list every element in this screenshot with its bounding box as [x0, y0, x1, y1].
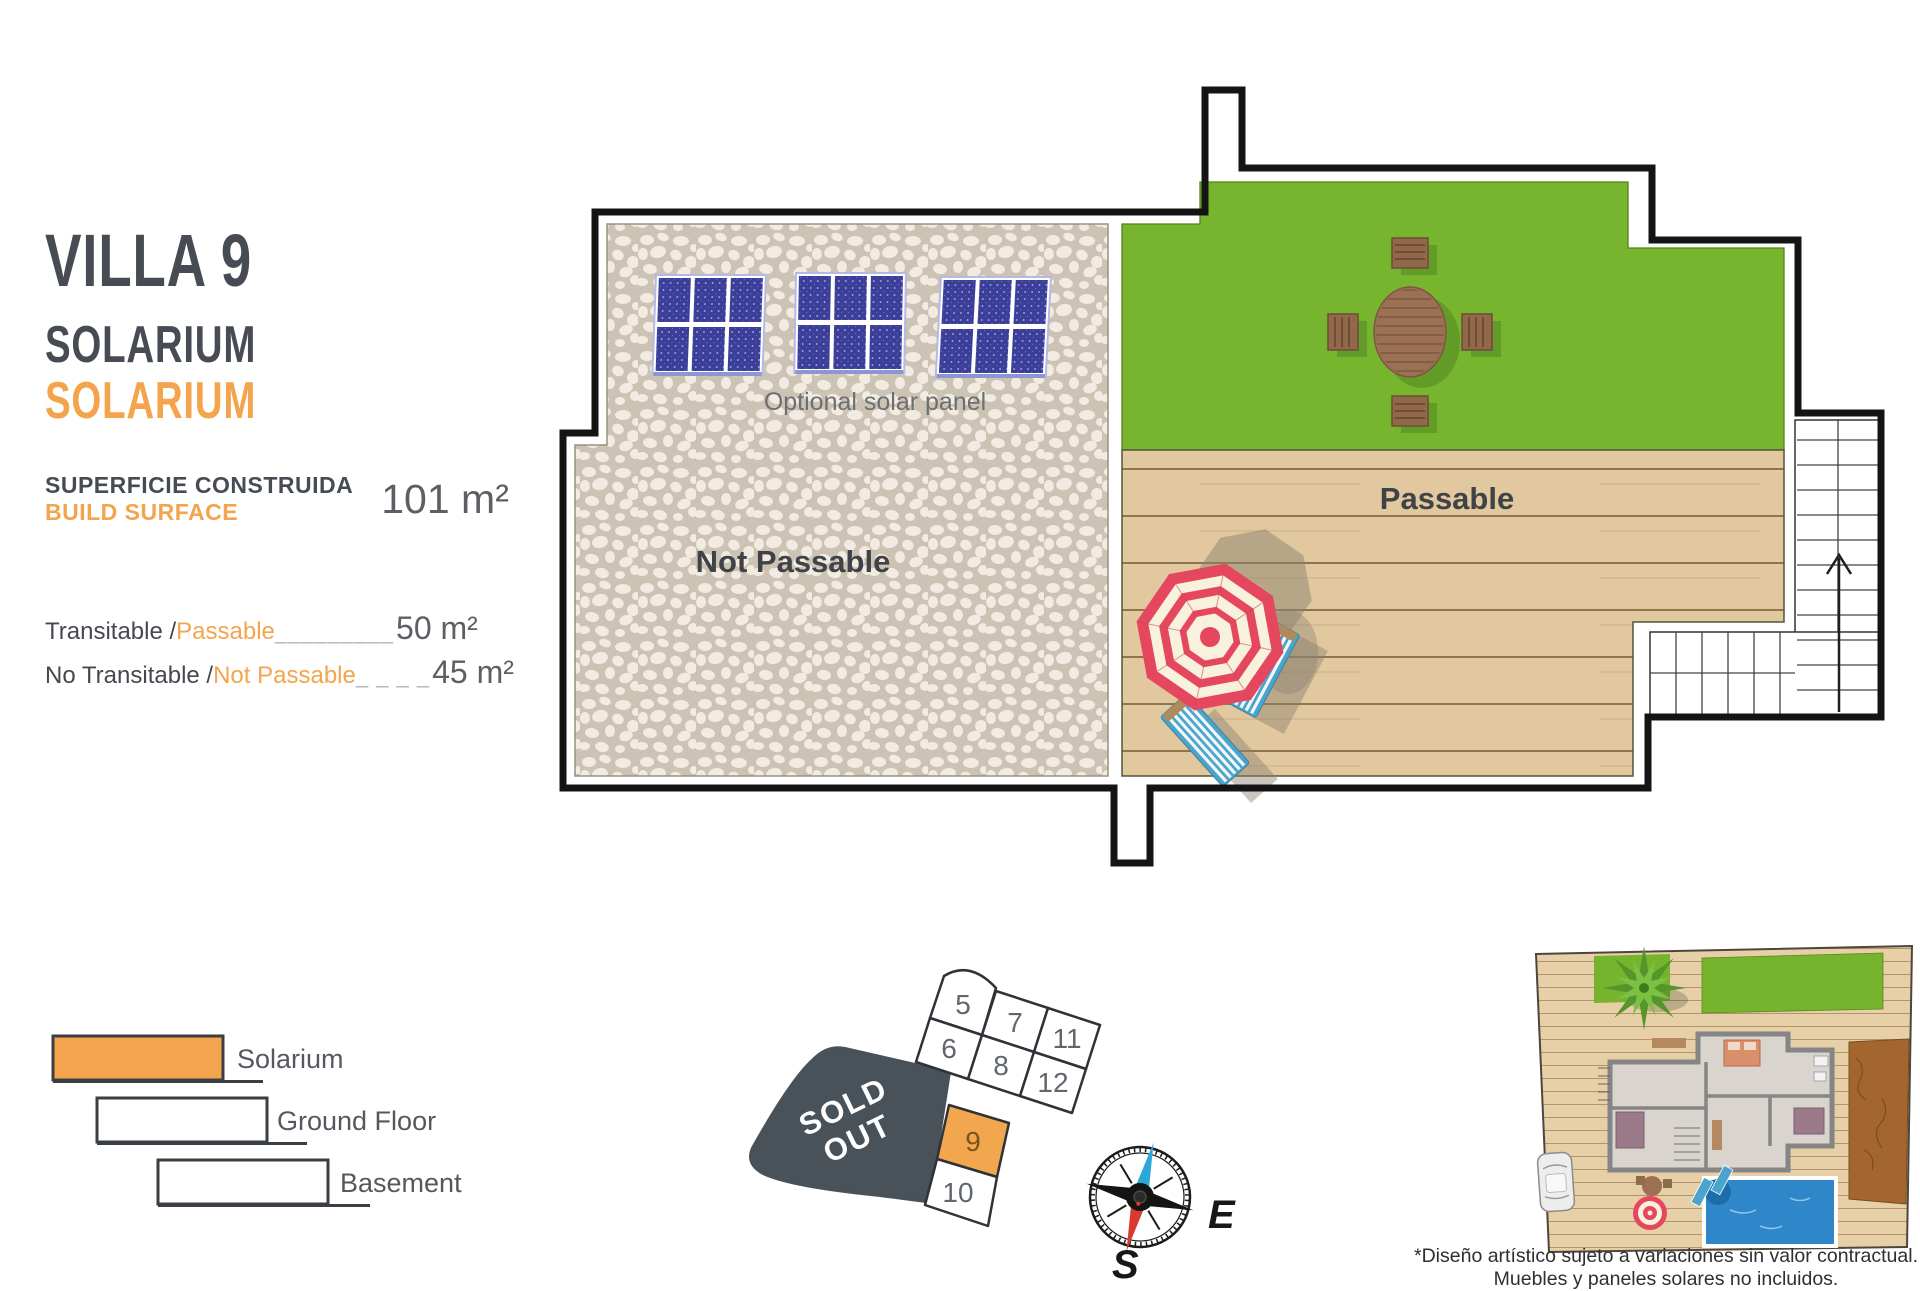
solarium-floorplan: Optional solar panel Not Passable Passab…: [563, 90, 1881, 863]
not-passable-label: Not Passable: [696, 544, 891, 579]
swimming-pool: [1704, 1178, 1836, 1246]
plot-locator-map: 5 7 11 6 8 12 9 10 SOLD OUT: [750, 970, 1100, 1226]
floor-legend: Solarium Ground Floor Basement: [53, 1036, 462, 1206]
car: [1537, 1152, 1575, 1212]
site-lawn: [1702, 953, 1883, 1013]
solar-panel: [651, 274, 767, 376]
plan-canvas: Optional solar panel Not Passable Passab…: [0, 0, 1920, 1280]
plot-number: 7: [1007, 1007, 1023, 1038]
legend-item-solarium: Solarium: [53, 1036, 344, 1082]
site-dirt-garden: [1849, 1039, 1909, 1204]
compass-east-label: E: [1208, 1193, 1236, 1237]
plot-number: 6: [941, 1033, 957, 1064]
passable-label: Passable: [1380, 481, 1514, 516]
solar-panels: [651, 272, 1052, 378]
legend-label: Basement: [340, 1168, 462, 1198]
plot-number: 5: [955, 989, 971, 1020]
legend-label: Ground Floor: [277, 1106, 436, 1136]
plot-number: 8: [993, 1050, 1009, 1081]
legend-label: Solarium: [237, 1044, 344, 1074]
legend-item-ground-floor: Ground Floor: [97, 1098, 436, 1144]
solar-panel: [793, 272, 907, 374]
solar-panel: [935, 276, 1052, 378]
legend-item-basement: Basement: [158, 1160, 462, 1206]
disclaimer: *Diseño artístico sujeto a variaciones s…: [1408, 1245, 1920, 1291]
site-plan-thumbnail: [1536, 946, 1912, 1252]
compass-south-label: S: [1112, 1243, 1139, 1280]
page: VILLA 9 SOLARIUM SOLARIUM SUPERFICIE CON…: [0, 0, 1920, 1280]
compass-rose: E S: [1073, 1129, 1236, 1280]
plot-number: 9: [965, 1126, 981, 1157]
round-table: [1374, 287, 1446, 377]
plot-number: 11: [1052, 1023, 1081, 1054]
optional-solar-label: Optional solar panel: [764, 388, 986, 416]
disclaimer-line1: *Diseño artístico sujeto a variaciones s…: [1408, 1245, 1920, 1268]
plot-number: 10: [942, 1177, 973, 1208]
plot-number: 12: [1037, 1067, 1068, 1098]
mini-umbrella: [1633, 1196, 1667, 1230]
